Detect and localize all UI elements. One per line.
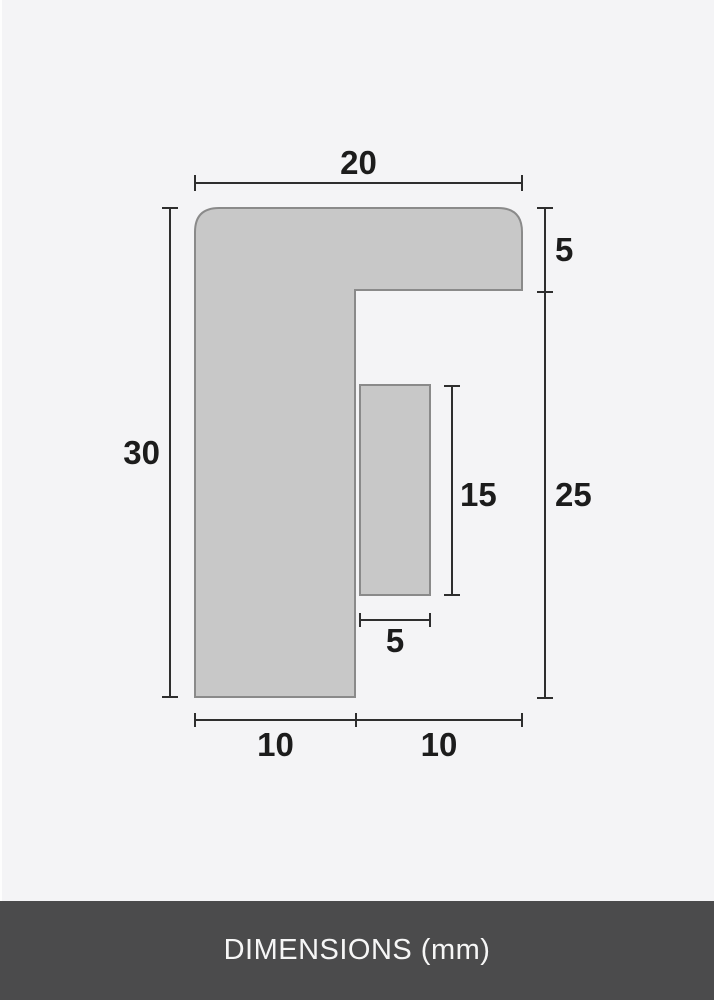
- dim-label-inner-width: 5: [360, 624, 430, 657]
- footer-caption-bar: DIMENSIONS (mm): [0, 901, 714, 1000]
- dim-label-bottom-left-width: 10: [195, 728, 356, 761]
- dim-label-inner-height: 15: [460, 478, 497, 511]
- diagram-canvas: 20 30 5 15 25 5 10 10 DIMENSIONS (mm): [0, 0, 714, 1000]
- dim-label-left-height: 30: [100, 436, 160, 469]
- dim-line-right-heights: [537, 208, 553, 698]
- dim-label-right-lower-height: 25: [555, 478, 592, 511]
- profile-shape: [195, 208, 522, 697]
- rabbet-rectangle: [360, 385, 430, 595]
- footer-caption-label: DIMENSIONS (mm): [224, 934, 491, 967]
- dim-label-bottom-right-width: 10: [356, 728, 522, 761]
- dim-line-inner-height: [444, 386, 460, 595]
- dim-label-top-width: 20: [195, 146, 522, 179]
- dim-label-right-upper-height: 5: [555, 233, 573, 266]
- dim-line-left-height: [162, 208, 178, 697]
- dim-line-bottom-widths: [195, 713, 522, 727]
